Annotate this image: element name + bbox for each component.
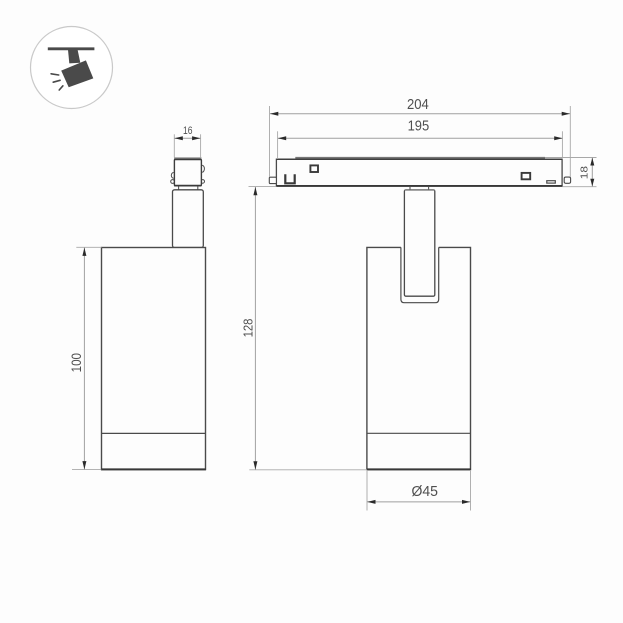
svg-text:Ø45: Ø45 [411, 483, 438, 500]
svg-text:204: 204 [407, 97, 429, 113]
svg-text:128: 128 [242, 319, 256, 338]
svg-text:16: 16 [183, 125, 193, 137]
svg-text:195: 195 [408, 119, 430, 135]
svg-text:18: 18 [580, 166, 591, 180]
svg-text:100: 100 [69, 353, 84, 372]
